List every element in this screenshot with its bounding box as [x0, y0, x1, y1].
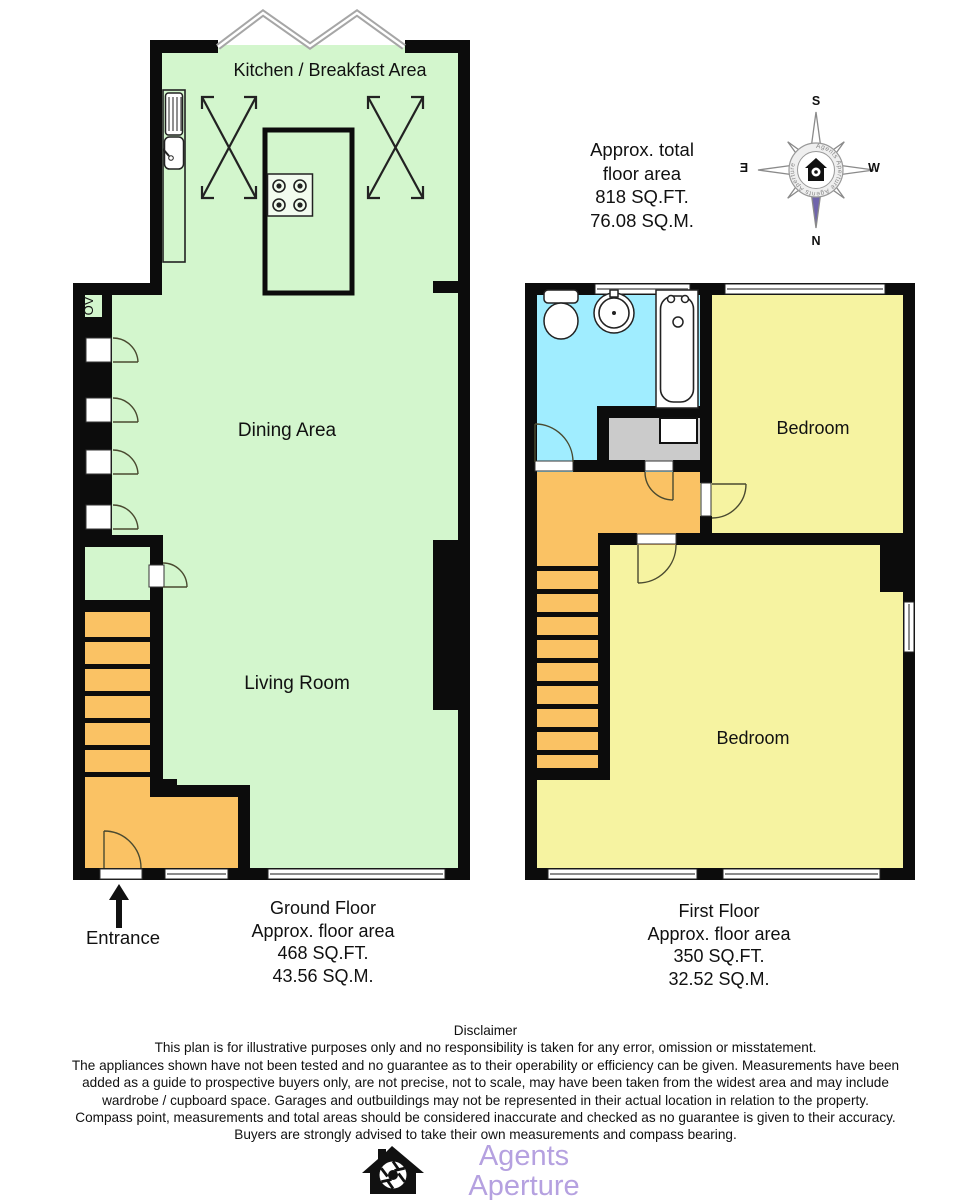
compass-house-aperture-dot — [814, 170, 818, 174]
wall-segment — [458, 40, 470, 880]
bay-window-zigzag — [218, 13, 404, 47]
stair-tread-line — [85, 772, 152, 777]
burner-dot — [297, 202, 302, 207]
stair-tread-line — [85, 718, 152, 723]
wall-pier — [433, 281, 470, 293]
entrance-door — [100, 869, 142, 879]
bathtub — [656, 290, 698, 408]
toilet-bowl — [544, 303, 578, 339]
entrance-arrow — [109, 884, 129, 928]
disclaimer-line: The appliances shown have not been teste… — [0, 1057, 971, 1074]
chimney-breast — [433, 540, 458, 710]
first-floor-caption: First Floor Approx. floor area 350 SQ.FT… — [569, 900, 869, 990]
dining-label: Dining Area — [212, 420, 362, 442]
first-floor-sqft: 350 SQ.FT. — [569, 945, 869, 968]
bedroom-divider-wall — [676, 533, 915, 545]
stair-tread-line — [537, 750, 598, 755]
first-floor-rooms — [537, 295, 903, 868]
disclaimer-line: This plan is for illustrative purposes o… — [0, 1039, 971, 1056]
wall-segment — [903, 283, 915, 880]
storage-wall — [673, 460, 712, 472]
bedroom-front-label: Bedroom — [738, 418, 888, 439]
bath-tap — [668, 296, 675, 303]
storage-cupboard — [660, 418, 697, 443]
first-floor-sqm: 32.52 SQ.M. — [569, 968, 869, 991]
bedroom-back-label: Bedroom — [678, 728, 828, 749]
hall-wall — [150, 785, 250, 797]
storage-wall — [597, 406, 609, 472]
basin-tap — [610, 290, 618, 297]
first-floor-plan — [525, 283, 915, 880]
compass-west-label: W — [864, 161, 884, 175]
wall-segment — [73, 535, 163, 547]
ground-floor-sqft: 468 SQ.FT. — [173, 942, 473, 965]
hall-wall — [238, 797, 250, 880]
arrow-shaft — [116, 899, 122, 928]
compass-south-label: S — [806, 94, 826, 108]
first-floor-subtitle: Approx. floor area — [569, 923, 869, 946]
total-area-line1: Approx. total — [492, 138, 792, 162]
cupboard-door — [86, 338, 111, 362]
storage-door — [645, 461, 673, 471]
wall-segment — [150, 40, 162, 295]
ground-floor-caption: Ground Floor Approx. floor area 468 SQ.F… — [173, 897, 473, 987]
drainer — [166, 93, 183, 135]
total-area-sqft: 818 SQ.FT. — [492, 185, 792, 209]
stair-tread-line — [537, 704, 598, 709]
total-area-block: Approx. total floor area 818 SQ.FT. 76.0… — [492, 138, 792, 232]
compass-north-label: N — [806, 234, 826, 248]
ground-floor-title: Ground Floor — [173, 897, 473, 920]
wall-segment — [85, 600, 163, 612]
stair-side-wall — [598, 533, 610, 780]
bath-tap — [682, 296, 689, 303]
arrow-head — [109, 884, 129, 900]
stair-tread-line — [537, 589, 598, 594]
bath-drain — [673, 317, 683, 327]
brand-name: Agents Aperture — [426, 1141, 622, 1200]
cupboard-door — [86, 398, 111, 422]
wall-segment — [525, 283, 537, 880]
ground-floor-windows — [165, 869, 445, 879]
stair-bottom-wall — [537, 768, 610, 780]
footer-brand-block: Agents Aperture agentsaperture.co.uk — [426, 1141, 622, 1200]
ground-floor-subtitle: Approx. floor area — [173, 920, 473, 943]
bathroom-door — [535, 461, 573, 471]
first-floor-title: First Floor — [569, 900, 869, 923]
floorplan-graphics: Agents Aperture Agents Aperture — [0, 0, 971, 1200]
total-area-sqm: 76.08 SQ.M. — [492, 209, 792, 233]
kitchen-label: Kitchen / Breakfast Area — [205, 60, 455, 81]
disclaimer-line: added as a guide to prospective buyers o… — [0, 1074, 971, 1091]
stair-tread-line — [85, 637, 152, 642]
understair-door — [149, 565, 164, 587]
wall-segment — [150, 40, 218, 53]
ground-floor-sqm: 43.56 SQ.M. — [173, 965, 473, 988]
basin-drain — [612, 311, 616, 315]
ground-floor-plan — [73, 13, 470, 928]
disclaimer-block: Disclaimer This plan is for illustrative… — [0, 1022, 971, 1144]
living-label: Living Room — [222, 673, 372, 695]
cupboard-door — [86, 505, 111, 529]
stair-tread-line — [537, 681, 598, 686]
bathroom-wall — [700, 516, 712, 533]
stair-tread-line — [537, 635, 598, 640]
wall-segment — [405, 40, 470, 53]
stair-tread-line — [537, 658, 598, 663]
stair-tread-line — [85, 745, 152, 750]
floorplan-page: Agents Aperture Agents Aperture Kitchen … — [0, 0, 971, 1200]
chimney-breast — [880, 545, 903, 592]
stair-tread-line — [537, 566, 598, 571]
disclaimer-line: wardrobe / cupboard space. Garages and o… — [0, 1092, 971, 1109]
footer-logo-icon — [362, 1146, 424, 1194]
bathroom-wall — [700, 295, 712, 483]
stair-tread-line — [85, 691, 152, 696]
cupboard-door — [86, 450, 111, 474]
bedroom-front-area — [700, 295, 903, 533]
burner-dot — [297, 183, 302, 188]
disclaimer-title: Disclaimer — [0, 1022, 971, 1039]
burner-dot — [276, 183, 281, 188]
compass-east-label: E — [734, 161, 754, 175]
bedroom-back-door — [637, 534, 676, 544]
burner-dot — [276, 202, 281, 207]
stair-tread-line — [537, 727, 598, 732]
stairwell-area — [537, 545, 598, 768]
toilet-cistern — [544, 290, 578, 303]
oven-label: OV — [81, 293, 105, 319]
bedroom-front-door — [701, 483, 711, 516]
wall-segment — [73, 283, 85, 880]
stair-tread-line — [85, 664, 152, 669]
stair-tread-line — [537, 612, 598, 617]
disclaimer-line: Compass point, measurements and total ar… — [0, 1109, 971, 1126]
entrance-label: Entrance — [53, 927, 193, 950]
